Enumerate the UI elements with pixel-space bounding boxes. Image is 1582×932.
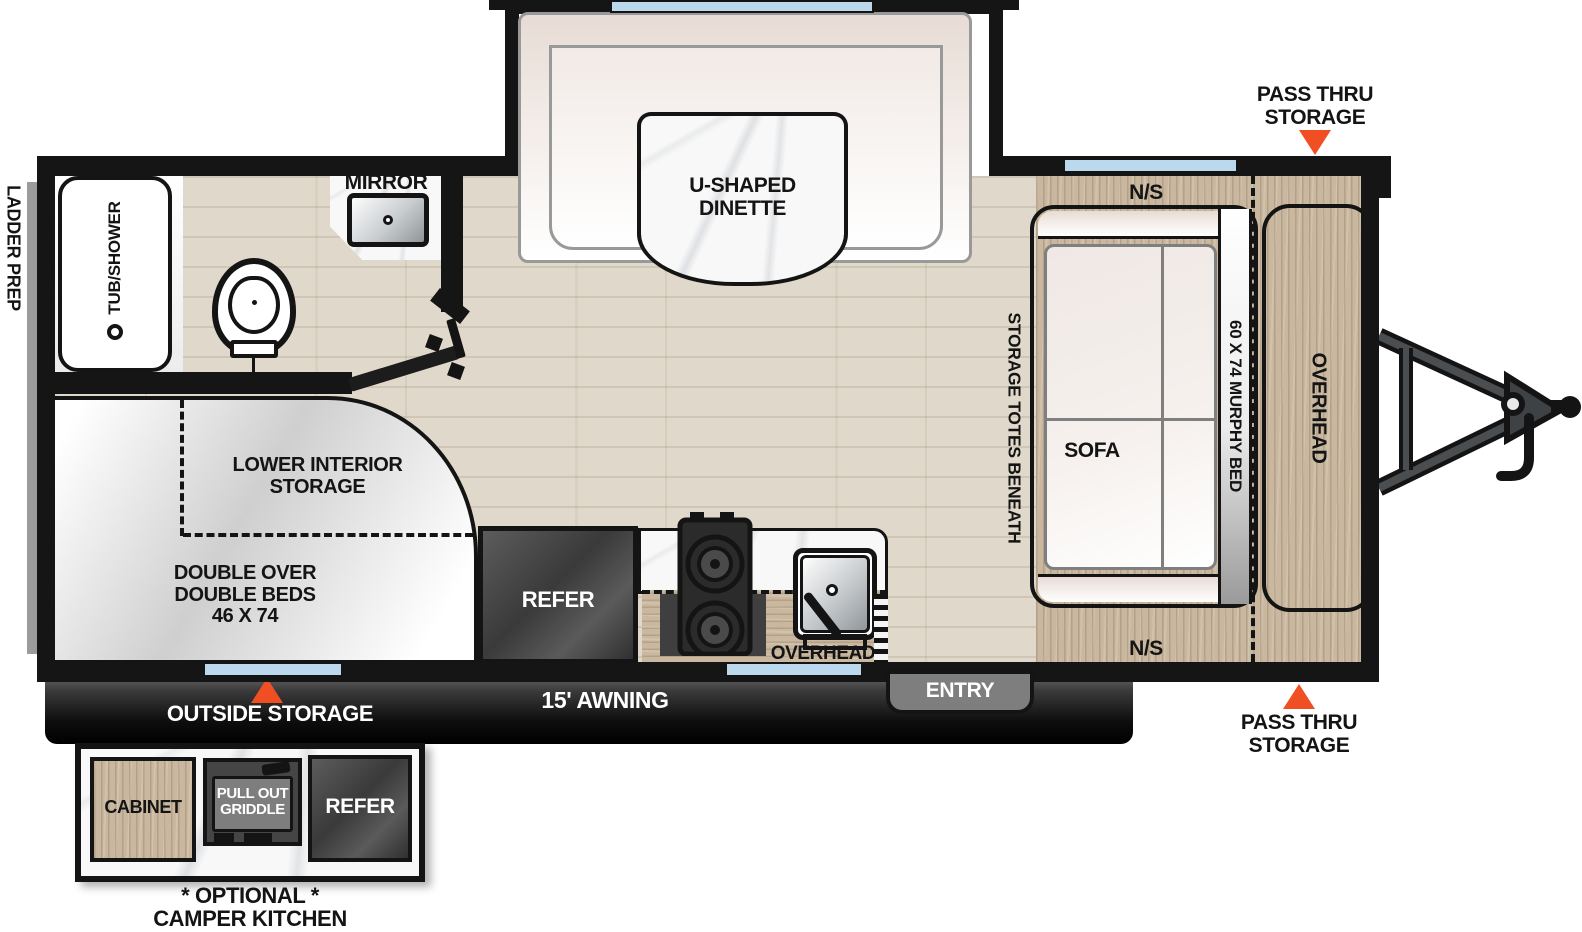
inset-griddle-foot2 [244,833,272,842]
sofa-divider-h [1046,418,1215,421]
ladder-prep-label: LADDER PREP [3,185,24,311]
bathroom-wall-lower [37,372,352,394]
lower-storage-dash-horizontal [183,533,473,537]
sofa-back-strip [1038,211,1218,239]
wall-right [1361,156,1379,682]
window-dinette [610,0,874,13]
tub-shower-label: TUB/SHOWER [105,201,125,314]
sink-ledge [803,634,867,650]
lower-interior-storage-label: LOWER INTERIOR STORAGE [215,455,420,498]
pass-thru-bottom-label: PASS THRU STORAGE [1219,712,1379,757]
sofa-mattress [1044,244,1217,570]
pass-thru-bottom-arrow [1283,684,1315,709]
ns-top-label: N/S [1110,182,1182,205]
ns-bottom-label: N/S [1110,638,1182,661]
pass-thru-top-label: PASS THRU STORAGE [1235,84,1395,129]
toilet-base [230,340,278,358]
optional-camper-kitchen-caption: * OPTIONAL * CAMPER KITCHEN [110,884,390,930]
toilet-seat [228,276,280,334]
pass-thru-dash-line [1251,176,1255,662]
sink-drain [826,584,838,596]
front-overhead-label: OVERHEAD [1307,353,1330,464]
inset-cabinet-label: CABINET [88,798,198,817]
screen-wall-hatch [874,594,888,662]
floorplan-canvas: 15' AWNING OUTSIDE STORAGE TUB/SHOWER MI… [0,0,1582,932]
wall-top-left [37,156,506,176]
toilet-dot [252,300,257,305]
hitch-tongue [1379,318,1582,510]
pass-thru-top-arrow [1299,130,1331,155]
lower-storage-dash-vertical [180,400,184,536]
window-kitchen [725,662,863,677]
entry-label: ENTRY [886,680,1034,703]
wall-corner-nub [1379,156,1391,198]
refer-label: REFER [478,588,638,612]
outside-storage-label: OUTSIDE STORAGE [155,702,385,726]
awning-label: 15' AWNING [525,688,685,713]
storage-totes-label: STORAGE TOTES BENEATH [1004,313,1025,544]
dinette-table-label: U-SHAPED DINETTE [637,175,848,220]
sofa-label: SOFA [1052,440,1132,463]
sofa-divider-v [1161,246,1164,568]
vanity-drain [383,215,393,225]
sofa-front-strip [1038,574,1218,602]
window-bed [203,662,343,677]
inset-griddle-foot1 [214,833,234,842]
inset-griddle-label: PULL OUT GRIDDLE [212,786,293,818]
inset-refer-label: REFER [306,796,414,819]
wall-left [37,156,55,682]
window-front [1063,158,1238,173]
cooktop [676,512,754,656]
murphy-bed-label: 60 X 74 MURPHY BED [1225,320,1245,492]
toilet-tick [252,358,255,372]
rear-bumper [27,182,37,654]
double-beds-label: DOUBLE OVER DOUBLE BEDS 46 X 74 [150,563,340,628]
tub-drain [107,324,123,340]
